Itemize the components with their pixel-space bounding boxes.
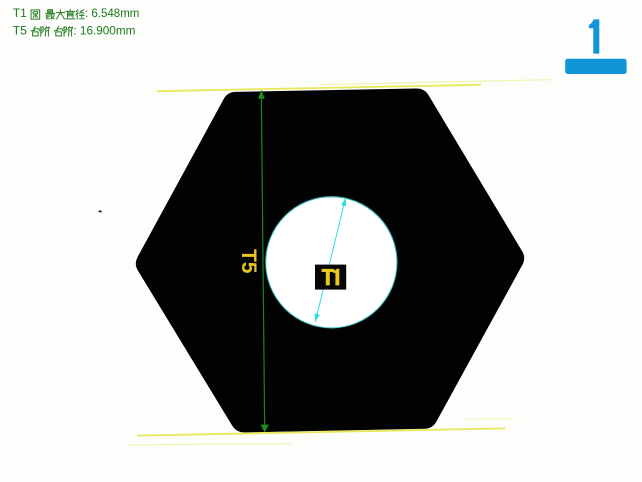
svg-text:T5: T5 — [13, 24, 27, 38]
svg-text:: 16.900mm: : 16.900mm — [73, 24, 135, 38]
svg-text:: 6.548mm: : 6.548mm — [85, 6, 139, 20]
svg-text:T5: T5 — [237, 249, 260, 274]
svg-text:T1: T1 — [13, 6, 27, 20]
